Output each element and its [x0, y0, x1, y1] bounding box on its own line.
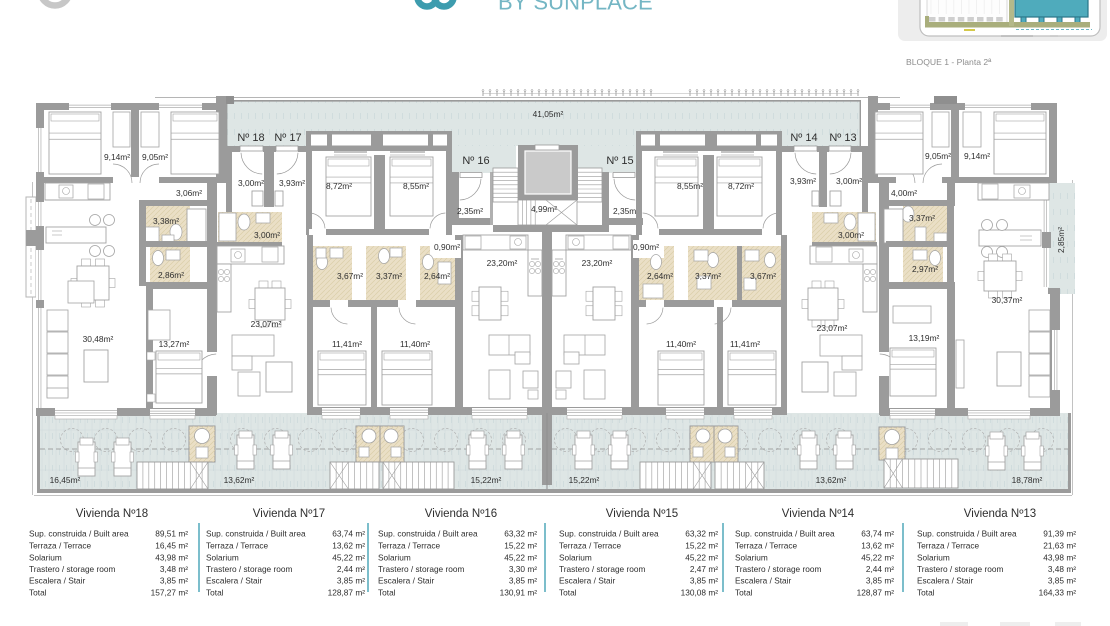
- svg-text:Escalera / Stair: Escalera / Stair: [29, 576, 85, 586]
- svg-text:3,85 m²: 3,85 m²: [1048, 576, 1076, 586]
- svg-text:9,05m²: 9,05m²: [925, 151, 951, 161]
- svg-text:Sup. construida / Built area: Sup. construida / Built area: [559, 529, 659, 539]
- svg-text:15,22m²: 15,22m²: [471, 475, 502, 485]
- svg-text:45,22 m²: 45,22 m²: [504, 553, 537, 563]
- svg-text:8,55m²: 8,55m²: [403, 181, 429, 191]
- svg-text:45,22 m²: 45,22 m²: [685, 553, 718, 563]
- svg-text:0,90m²: 0,90m²: [633, 242, 659, 252]
- svg-text:3,30 m²: 3,30 m²: [509, 564, 537, 574]
- svg-text:Sup. construida / Built area: Sup. construida / Built area: [29, 529, 129, 539]
- svg-text:Terraza / Terrace: Terraza / Terrace: [559, 541, 621, 551]
- svg-text:Terraza / Terrace: Terraza / Terrace: [378, 541, 440, 551]
- svg-text:30,48m²: 30,48m²: [83, 334, 114, 344]
- svg-text:Total: Total: [378, 588, 396, 598]
- svg-text:4,00m²: 4,00m²: [891, 188, 917, 198]
- svg-text:3,93m²: 3,93m²: [279, 178, 305, 188]
- svg-text:Trastero / storage room: Trastero / storage room: [29, 564, 115, 574]
- svg-text:Total: Total: [559, 588, 577, 598]
- svg-text:15,22 m²: 15,22 m²: [504, 541, 537, 551]
- svg-text:Total: Total: [735, 588, 753, 598]
- svg-text:4,99m²: 4,99m²: [531, 204, 557, 214]
- svg-text:3,38m²: 3,38m²: [153, 216, 179, 226]
- svg-text:Terraza / Terrace: Terraza / Terrace: [206, 541, 268, 551]
- svg-text:3,00m²: 3,00m²: [838, 230, 864, 240]
- svg-text:63,74 m²: 63,74 m²: [861, 529, 894, 539]
- svg-text:2,44 m²: 2,44 m²: [337, 564, 365, 574]
- svg-text:3,93m²: 3,93m²: [790, 176, 816, 186]
- svg-text:15,22m²: 15,22m²: [569, 475, 600, 485]
- svg-text:13,62 m²: 13,62 m²: [332, 541, 365, 551]
- svg-text:2,35m²: 2,35m²: [613, 206, 639, 216]
- svg-text:13,27m²: 13,27m²: [159, 339, 190, 349]
- svg-text:11,40m²: 11,40m²: [400, 339, 430, 349]
- svg-text:3,48 m²: 3,48 m²: [160, 564, 188, 574]
- svg-text:Terraza / Terrace: Terraza / Terrace: [29, 541, 91, 551]
- svg-text:Escalera / Stair: Escalera / Stair: [735, 576, 791, 586]
- svg-text:Terraza / Terrace: Terraza / Terrace: [917, 541, 979, 551]
- svg-text:43,98 m²: 43,98 m²: [155, 553, 188, 563]
- svg-text:63,74 m²: 63,74 m²: [332, 529, 365, 539]
- svg-text:Nº 16: Nº 16: [462, 155, 489, 167]
- svg-text:0,90m²: 0,90m²: [434, 242, 460, 252]
- svg-text:Sup. construida / Built area: Sup. construida / Built area: [206, 529, 306, 539]
- svg-text:3,48 m²: 3,48 m²: [1048, 564, 1076, 574]
- svg-text:Nº 15: Nº 15: [606, 155, 633, 167]
- svg-text:2,64m²: 2,64m²: [647, 271, 673, 281]
- svg-text:3,85 m²: 3,85 m²: [866, 576, 894, 586]
- svg-text:Sup. construida / Built area: Sup. construida / Built area: [917, 529, 1017, 539]
- svg-text:3,06m²: 3,06m²: [176, 188, 202, 198]
- svg-text:Vivienda Nº16: Vivienda Nº16: [425, 508, 497, 520]
- svg-text:2,44 m²: 2,44 m²: [866, 564, 894, 574]
- svg-text:89,51 m²: 89,51 m²: [155, 529, 188, 539]
- svg-text:Total: Total: [29, 588, 47, 598]
- svg-text:91,39 m²: 91,39 m²: [1043, 529, 1076, 539]
- svg-text:Escalera / Stair: Escalera / Stair: [378, 576, 434, 586]
- svg-text:9,14m²: 9,14m²: [104, 152, 130, 162]
- svg-text:Vivienda Nº15: Vivienda Nº15: [606, 508, 678, 520]
- svg-text:130,91 m²: 130,91 m²: [500, 588, 538, 598]
- svg-text:3,00m²: 3,00m²: [238, 178, 264, 188]
- svg-text:128,87 m²: 128,87 m²: [857, 588, 895, 598]
- svg-text:3,37m²: 3,37m²: [909, 213, 935, 223]
- svg-text:3,67m²: 3,67m²: [337, 271, 363, 281]
- svg-text:11,41m²: 11,41m²: [730, 339, 760, 349]
- svg-text:45,22 m²: 45,22 m²: [332, 553, 365, 563]
- svg-text:18,78m²: 18,78m²: [1012, 475, 1043, 485]
- svg-text:2,64m²: 2,64m²: [424, 271, 450, 281]
- svg-text:Solarium: Solarium: [378, 553, 411, 563]
- svg-text:2,86m²: 2,86m²: [158, 270, 184, 280]
- svg-text:3,85 m²: 3,85 m²: [509, 576, 537, 586]
- svg-text:41,05m²: 41,05m²: [533, 109, 564, 119]
- svg-text:3,00m²: 3,00m²: [836, 176, 862, 186]
- svg-text:Solarium: Solarium: [917, 553, 950, 563]
- svg-text:63,32 m²: 63,32 m²: [504, 529, 537, 539]
- svg-text:Trastero / storage room: Trastero / storage room: [735, 564, 821, 574]
- svg-text:Total: Total: [206, 588, 224, 598]
- svg-text:13,19m²: 13,19m²: [909, 333, 940, 343]
- svg-text:11,40m²: 11,40m²: [666, 339, 696, 349]
- svg-text:45,22 m²: 45,22 m²: [861, 553, 894, 563]
- svg-text:Terraza / Terrace: Terraza / Terrace: [735, 541, 797, 551]
- svg-text:3,85 m²: 3,85 m²: [160, 576, 188, 586]
- svg-text:128,87 m²: 128,87 m²: [328, 588, 366, 598]
- svg-text:Sup. construida / Built area: Sup. construida / Built area: [735, 529, 835, 539]
- svg-text:BY SUNPLACE: BY SUNPLACE: [498, 0, 653, 15]
- svg-text:3,37m²: 3,37m²: [695, 271, 721, 281]
- svg-text:Nº 13: Nº 13: [829, 132, 856, 144]
- svg-text:Nº 18: Nº 18: [237, 132, 264, 144]
- svg-text:3,85 m²: 3,85 m²: [690, 576, 718, 586]
- svg-text:43,98 m²: 43,98 m²: [1043, 553, 1076, 563]
- svg-text:Vivienda Nº17: Vivienda Nº17: [253, 508, 325, 520]
- svg-text:9,14m²: 9,14m²: [964, 151, 990, 161]
- svg-text:8,72m²: 8,72m²: [326, 181, 352, 191]
- svg-text:Vivienda Nº13: Vivienda Nº13: [964, 508, 1036, 520]
- svg-text:9,05m²: 9,05m²: [142, 152, 168, 162]
- svg-text:21,63 m²: 21,63 m²: [1043, 541, 1076, 551]
- svg-text:Vivienda Nº18: Vivienda Nº18: [76, 508, 148, 520]
- svg-text:Solarium: Solarium: [735, 553, 768, 563]
- svg-text:3,85 m²: 3,85 m²: [337, 576, 365, 586]
- svg-text:30,37m²: 30,37m²: [992, 295, 1023, 305]
- svg-text:Trastero / storage room: Trastero / storage room: [378, 564, 464, 574]
- svg-text:Solarium: Solarium: [206, 553, 239, 563]
- svg-text:BLOQUE 1 - Planta 2ª: BLOQUE 1 - Planta 2ª: [906, 57, 992, 67]
- svg-text:3,37m²: 3,37m²: [376, 271, 402, 281]
- svg-text:63,32 m²: 63,32 m²: [685, 529, 718, 539]
- svg-text:23,20m²: 23,20m²: [487, 258, 518, 268]
- svg-text:15,22 m²: 15,22 m²: [685, 541, 718, 551]
- svg-text:Nº 17: Nº 17: [274, 132, 301, 144]
- svg-text:164,33 m²: 164,33 m²: [1039, 588, 1077, 598]
- svg-text:Trastero / storage room: Trastero / storage room: [559, 564, 645, 574]
- svg-text:Escalera / Stair: Escalera / Stair: [917, 576, 973, 586]
- svg-text:Nº 14: Nº 14: [790, 132, 817, 144]
- svg-text:Total: Total: [917, 588, 935, 598]
- svg-text:Escalera / Stair: Escalera / Stair: [206, 576, 262, 586]
- svg-text:Solarium: Solarium: [29, 553, 62, 563]
- svg-text:11,41m²: 11,41m²: [332, 339, 362, 349]
- svg-text:130,08 m²: 130,08 m²: [681, 588, 719, 598]
- svg-text:16,45 m²: 16,45 m²: [155, 541, 188, 551]
- svg-text:2,35m²: 2,35m²: [457, 206, 483, 216]
- svg-text:16,45m²: 16,45m²: [50, 475, 81, 485]
- svg-text:23,20m²: 23,20m²: [582, 258, 613, 268]
- svg-text:Trastero / storage room: Trastero / storage room: [917, 564, 1003, 574]
- svg-text:Solarium: Solarium: [559, 553, 592, 563]
- svg-text:23,07m²: 23,07m²: [817, 323, 848, 333]
- svg-text:3,00m²: 3,00m²: [254, 230, 280, 240]
- svg-text:157,27 m²: 157,27 m²: [151, 588, 189, 598]
- svg-text:2,85m²: 2,85m²: [1056, 227, 1066, 253]
- svg-text:23,07m²: 23,07m²: [251, 319, 282, 329]
- svg-text:8,55m²: 8,55m²: [677, 181, 703, 191]
- svg-text:13,62m²: 13,62m²: [224, 475, 255, 485]
- svg-text:Trastero / storage room: Trastero / storage room: [206, 564, 292, 574]
- svg-text:Vivienda Nº14: Vivienda Nº14: [782, 508, 855, 520]
- svg-text:2,97m²: 2,97m²: [912, 264, 938, 274]
- svg-text:13,62m²: 13,62m²: [816, 475, 847, 485]
- svg-text:2,47 m²: 2,47 m²: [690, 564, 718, 574]
- svg-text:13,62 m²: 13,62 m²: [861, 541, 894, 551]
- svg-text:3,67m²: 3,67m²: [750, 271, 776, 281]
- svg-text:Sup. construida / Built area: Sup. construida / Built area: [378, 529, 478, 539]
- svg-text:8,72m²: 8,72m²: [728, 181, 754, 191]
- svg-text:Escalera / Stair: Escalera / Stair: [559, 576, 615, 586]
